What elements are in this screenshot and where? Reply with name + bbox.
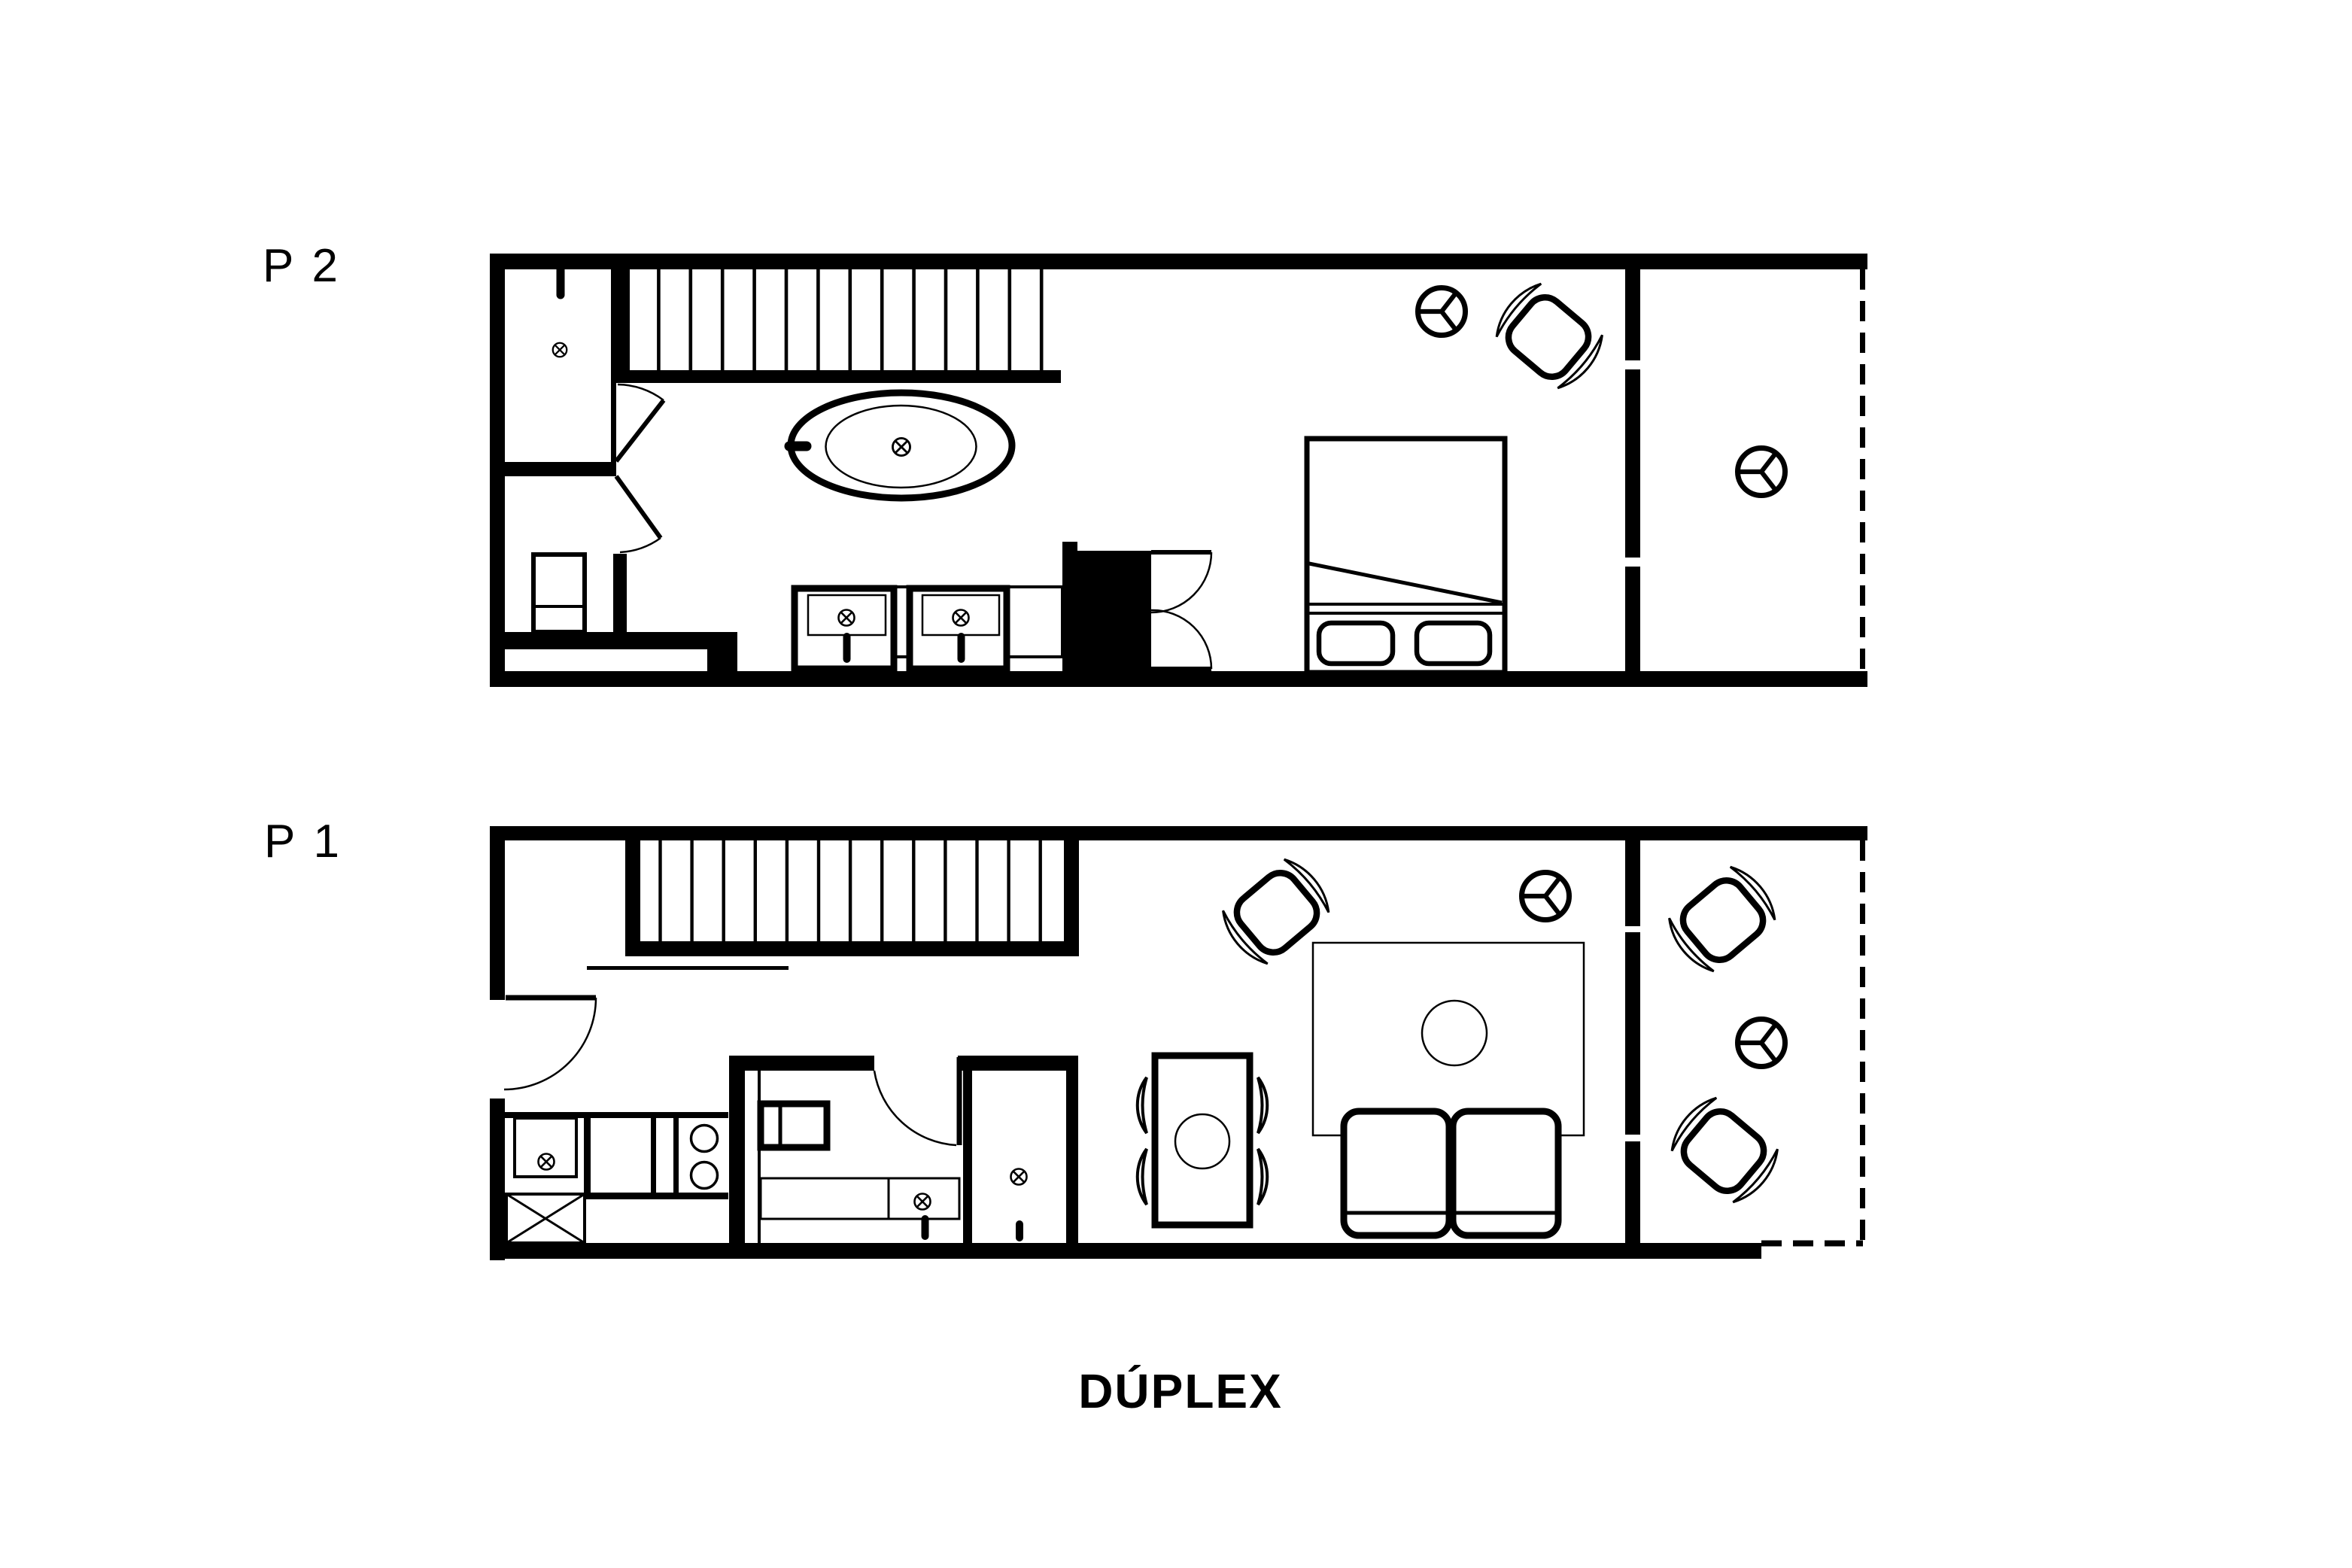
svg-text:DÚPLEX: DÚPLEX	[1078, 1364, 1283, 1418]
svg-text:P 1: P 1	[264, 816, 342, 868]
svg-text:P 2: P 2	[263, 240, 341, 292]
